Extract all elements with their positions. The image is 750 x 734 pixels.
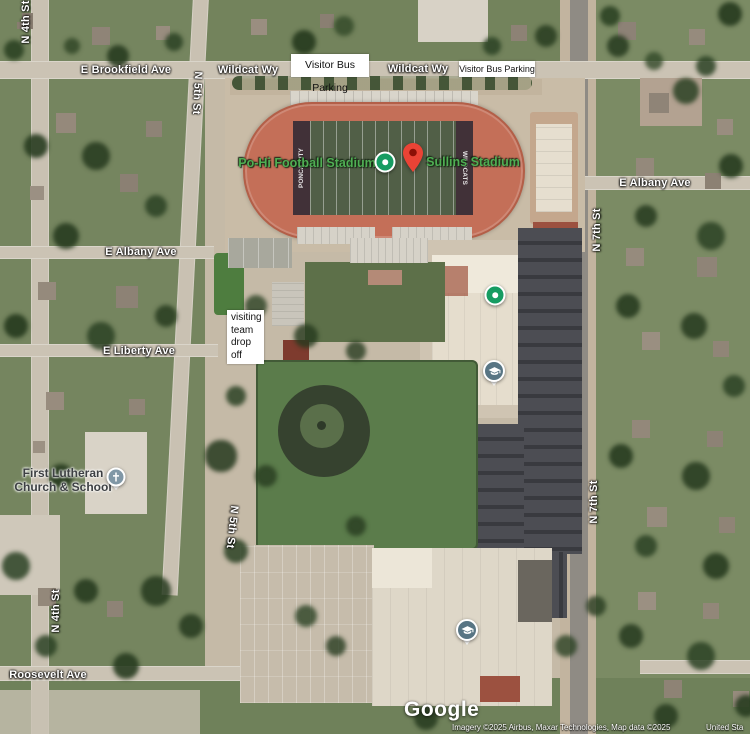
road-n-7th-st — [570, 0, 588, 734]
paved-area — [0, 690, 200, 734]
infield-grass — [300, 404, 344, 448]
houses — [0, 0, 22, 22]
fieldhouse-roof — [536, 124, 572, 212]
school-wing — [372, 548, 432, 588]
dark-roof-section — [518, 560, 552, 622]
street-label-wildcat-wy-1: Wildcat Wy — [218, 64, 278, 76]
baseball-field — [256, 360, 478, 550]
residential-block-west — [0, 0, 205, 734]
overlay-visitor-bus-parking-2: Visitor Bus Parking — [459, 61, 535, 77]
street-label-n-4th-st-top: N 4th St — [20, 0, 32, 43]
building — [418, 0, 488, 42]
red-pin-marker-sullins[interactable] — [403, 143, 423, 177]
cross-icon — [112, 473, 121, 482]
parking-lot-southeast — [440, 424, 524, 552]
poi-label-sullins-stadium[interactable]: Sullins Stadium — [426, 155, 520, 169]
street-label-e-albany-ave-west: E Albany Ave — [105, 246, 176, 258]
practice-field — [305, 262, 445, 342]
google-logo[interactable]: Google — [404, 698, 479, 722]
tennis-courts — [228, 238, 292, 268]
poi-label-first-lutheran[interactable]: First Lutheran Church & School — [14, 466, 111, 494]
overlay-visiting-team-drop-off: visiting team drop off — [227, 310, 264, 364]
graduation-cap-icon — [461, 624, 474, 637]
metal-roof-building — [272, 282, 304, 326]
street-label-n-7th-st-top: N 7th St — [591, 208, 603, 251]
residential-block-east — [596, 0, 750, 734]
street-label-n-5th-st-bottom: N 5th St — [224, 505, 240, 549]
tree-row — [232, 76, 532, 90]
map-attribution-region: United Sta — [706, 723, 743, 732]
brick-building — [533, 222, 578, 256]
small-building — [368, 270, 402, 285]
school-wing — [432, 255, 520, 293]
street-label-wildcat-wy-2: Wildcat Wy — [388, 63, 448, 75]
grass-strip — [214, 253, 244, 315]
street-label-n-4th-st-bottom: N 4th St — [50, 589, 62, 632]
school-marker-graduation-cap-2[interactable] — [456, 619, 478, 641]
satellite-map-canvas[interactable]: PONCA CITY WILDCATS N 4th St E Brookfiel… — [0, 0, 750, 734]
church-label-line1: First Lutheran — [14, 466, 111, 480]
baseball-infield — [278, 385, 370, 477]
metal-roof-building — [350, 238, 428, 263]
church-label-line2: Church & School — [14, 480, 111, 494]
parking-lot-striped — [240, 545, 374, 703]
road-n-7th-shoulder — [560, 0, 596, 734]
parking-lot-east — [518, 228, 582, 554]
bus-parking-strip — [230, 79, 542, 95]
street-label-e-albany-ave-east: E Albany Ave — [619, 177, 690, 189]
brick-building — [430, 266, 468, 296]
fieldhouse-building — [530, 112, 578, 224]
red-pin-icon — [403, 143, 423, 172]
green-dot-marker-stadium[interactable] — [375, 152, 396, 173]
street-label-e-brookfield-ave: E Brookfield Ave — [81, 64, 171, 76]
school-sidewalk — [420, 240, 520, 418]
school-marker-graduation-cap[interactable] — [483, 360, 505, 382]
green-dot-marker-school[interactable] — [485, 285, 506, 306]
street-label-n-7th-st-bottom: N 7th St — [588, 480, 600, 523]
south-bleachers — [392, 227, 472, 244]
street-label-e-liberty-ave: E Liberty Ave — [103, 345, 175, 357]
trees — [0, 0, 12, 12]
residential-block-north — [205, 0, 596, 62]
road-n-4th-st — [31, 0, 49, 734]
building — [0, 515, 60, 595]
street-label-roosevelt-ave: Roosevelt Ave — [9, 669, 87, 681]
parking-lot-south — [455, 552, 567, 618]
house-large — [640, 78, 702, 126]
road-roosevelt-ave-east — [640, 660, 750, 674]
church-marker-cross[interactable] — [107, 468, 126, 487]
graduation-cap-icon — [488, 365, 501, 378]
pitchers-mound — [317, 421, 326, 430]
street-label-n-5th-st-top: N 5th St — [190, 71, 204, 115]
high-school-building — [432, 255, 520, 405]
poi-label-po-hi-football-stadium[interactable]: Po-Hi Football Stadium — [238, 156, 376, 170]
map-attribution: Imagery ©2025 Airbus, Maxar Technologies… — [452, 723, 670, 732]
south-bleachers — [297, 227, 375, 244]
small-red-building — [283, 340, 309, 366]
red-roof-section — [480, 676, 520, 702]
overlay-visitor-bus-parking-1: Visitor Bus Parking — [291, 54, 369, 77]
